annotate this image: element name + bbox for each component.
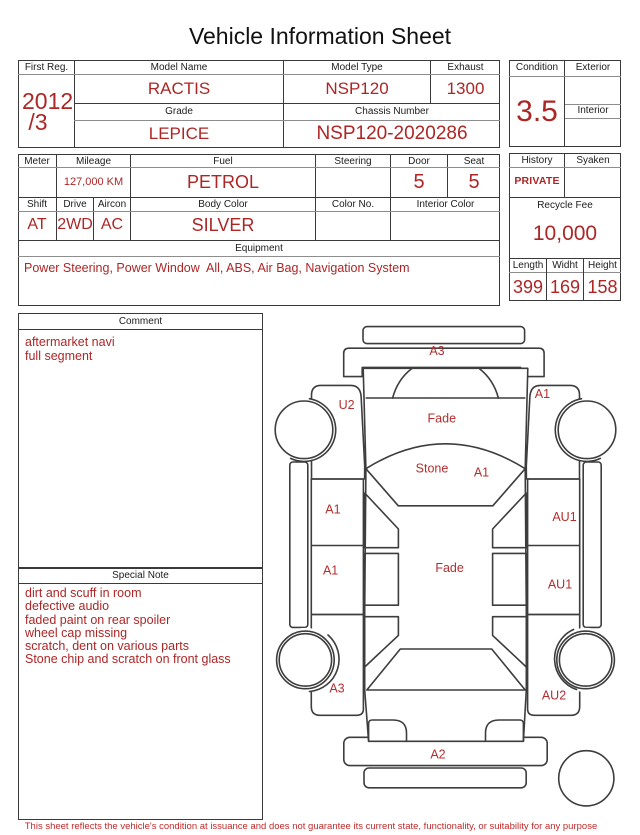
svg-text:AU1: AU1 <box>552 510 576 524</box>
svg-text:AU2: AU2 <box>542 689 566 703</box>
svg-text:Stone: Stone <box>416 462 449 476</box>
svg-text:A3: A3 <box>429 344 444 358</box>
svg-text:A1: A1 <box>325 503 340 517</box>
svg-text:A1: A1 <box>323 564 338 578</box>
svg-text:A3: A3 <box>329 682 344 696</box>
svg-text:A1: A1 <box>474 466 489 480</box>
svg-text:Fade: Fade <box>428 412 457 426</box>
svg-text:AU1: AU1 <box>548 578 572 592</box>
svg-text:A1: A1 <box>535 387 550 401</box>
svg-text:U2: U2 <box>339 398 355 412</box>
svg-text:Fade: Fade <box>435 561 464 575</box>
svg-text:A2: A2 <box>430 748 445 762</box>
